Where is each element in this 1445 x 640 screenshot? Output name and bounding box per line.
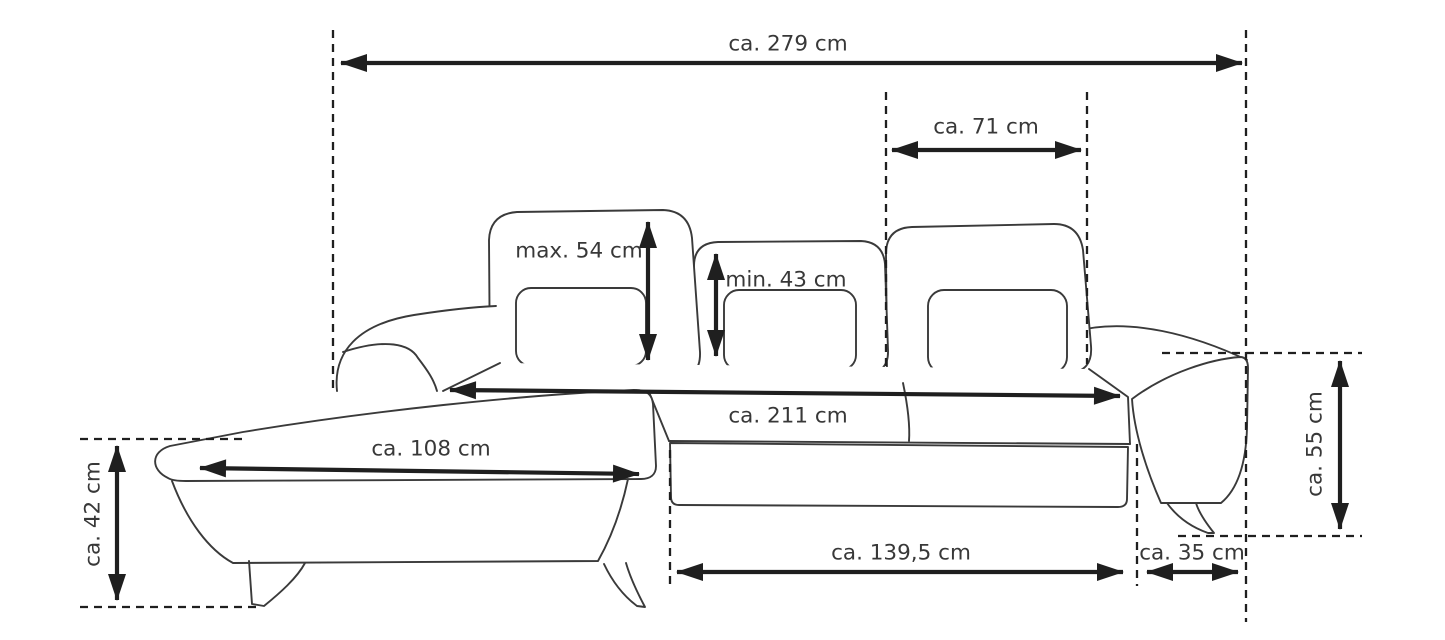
label-headrest-width: ca. 71 cm — [933, 115, 1039, 140]
pillow-left — [516, 288, 646, 366]
label-backrest-max-height: max. 54 cm — [515, 239, 642, 264]
chaise-right-leg — [604, 563, 645, 607]
seat-base-panel — [670, 443, 1128, 507]
diagram-canvas: ca. 279 cm ca. 71 cm max. 54 cm min. 43 … — [0, 0, 1445, 640]
label-inner-seat-width: ca. 211 cm — [728, 404, 847, 429]
right-armrest-back-edge — [1072, 326, 1247, 360]
label-chaise-width: ca. 108 cm — [371, 437, 490, 462]
label-armrest-width: ca. 35 cm — [1139, 541, 1245, 566]
chaise-skirt — [172, 479, 628, 563]
sofa-dimension-diagram: ca. 279 cm ca. 71 cm max. 54 cm min. 43 … — [0, 0, 1445, 640]
label-armrest-height: ca. 55 cm — [1303, 391, 1328, 497]
label-overall-width: ca. 279 cm — [728, 32, 847, 57]
label-backrest-min-height: min. 43 cm — [725, 268, 846, 293]
right-armrest-leg — [1167, 503, 1214, 533]
pillow-right — [928, 290, 1067, 373]
label-seat-height: ca. 42 cm — [81, 461, 106, 567]
sofa-drawing — [155, 210, 1248, 607]
right-armrest-front — [1132, 357, 1248, 503]
label-seat-section-depth: ca. 139,5 cm — [831, 541, 971, 566]
pillow-middle — [724, 290, 856, 370]
chaise-front-leg — [249, 561, 305, 606]
